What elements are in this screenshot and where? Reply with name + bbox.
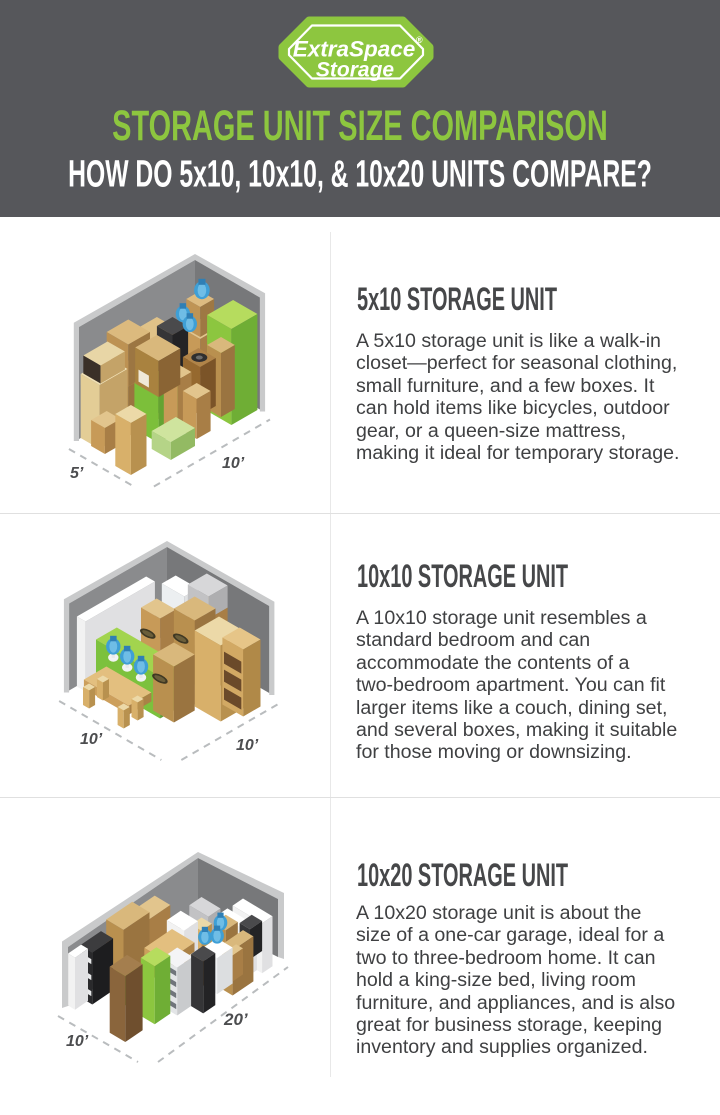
svg-text:20’: 20’: [223, 1010, 248, 1029]
svg-text:®: ®: [416, 35, 423, 45]
svg-text:Storage: Storage: [316, 59, 395, 82]
svg-text:10’: 10’: [66, 1033, 89, 1050]
svg-text:10’: 10’: [222, 455, 245, 472]
svg-text:5’: 5’: [70, 465, 84, 482]
svg-text:STORAGE UNIT SIZE COMPARISON: STORAGE UNIT SIZE COMPARISON: [112, 101, 608, 149]
svg-text:HOW DO 5x10, 10x10, & 10x20 UN: HOW DO 5x10, 10x10, & 10x20 UNITS COMPAR…: [68, 152, 652, 195]
svg-text:10’: 10’: [80, 731, 103, 748]
svg-text:10’: 10’: [236, 737, 259, 754]
